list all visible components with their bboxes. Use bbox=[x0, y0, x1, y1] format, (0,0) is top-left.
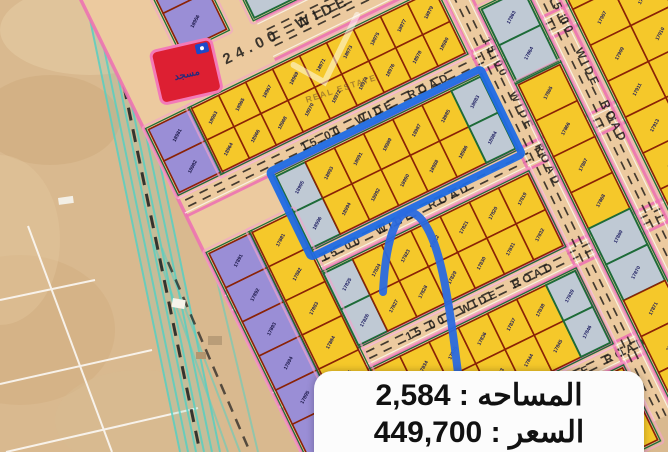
building bbox=[208, 336, 222, 345]
listing-map-image: 24.00 WIDE ROAD15.00 WIDE ROAD15.00 WIDE… bbox=[0, 0, 668, 452]
mosque-plot: مسجد bbox=[150, 38, 223, 105]
price-text: السعر : 449,700 bbox=[314, 416, 644, 450]
listing-info-box: المساحه : 2,584 السعر : 449,700 bbox=[314, 371, 644, 452]
building bbox=[196, 352, 206, 359]
area-text: المساحه : 2,584 bbox=[314, 380, 644, 412]
